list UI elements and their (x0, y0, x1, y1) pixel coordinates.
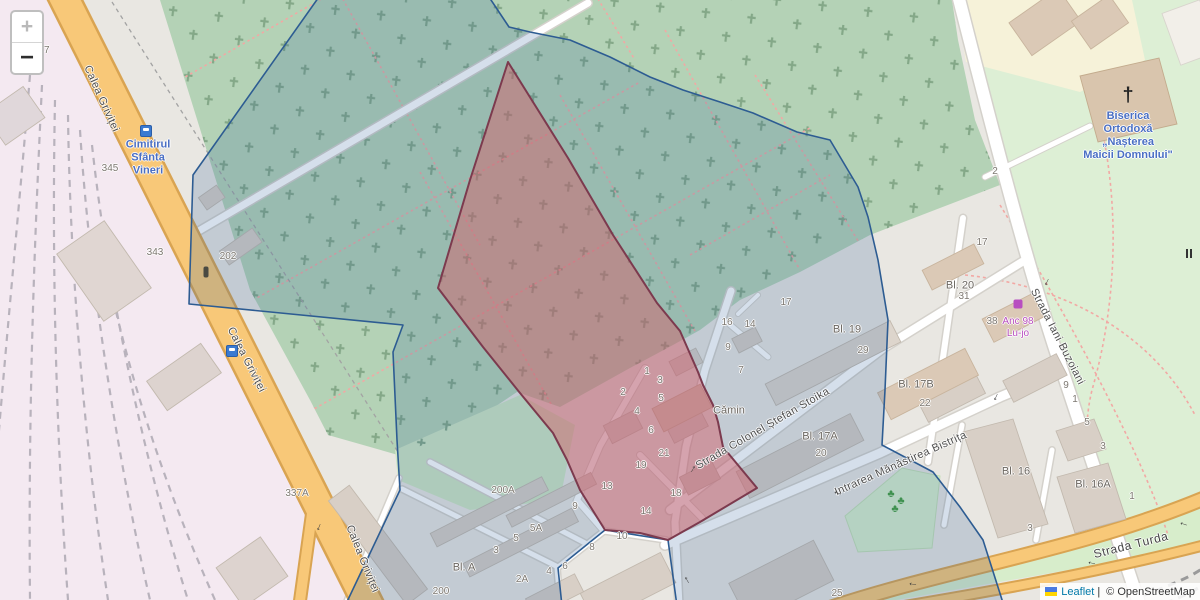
zoom-out-button[interactable]: − (12, 43, 42, 73)
leaflet-link[interactable]: Leaflet (1061, 586, 1094, 598)
map-canvas[interactable]: Calea GrivițeiCalea GrivițeiCalea Griviț… (0, 0, 1200, 600)
zoom-control: + − (10, 10, 44, 75)
zoom-in-button[interactable]: + (12, 12, 42, 43)
attribution-separator: | (1097, 586, 1100, 598)
osm-attribution-link[interactable]: © OpenStreetMap (1106, 586, 1195, 598)
basemap-tiles (0, 0, 1200, 600)
attribution-bar: Leaflet | © OpenStreetMap (1040, 583, 1200, 600)
ukraine-flag-icon (1045, 587, 1057, 596)
